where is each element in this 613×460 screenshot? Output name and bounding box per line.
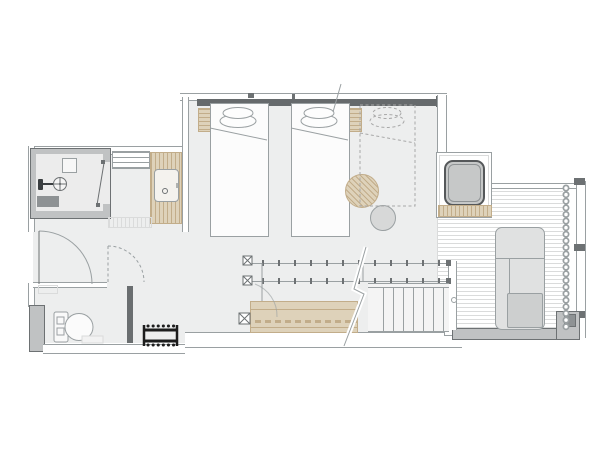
bedroom-right-wall	[437, 95, 447, 153]
floor-threshold	[108, 217, 152, 228]
main-bottom-wall	[185, 332, 462, 348]
window-mullion-mid	[574, 244, 585, 251]
twin-bed-1	[210, 103, 269, 237]
entry-threshold	[38, 285, 58, 294]
bathtub-inner-line	[448, 164, 481, 202]
twin-bed-2	[291, 103, 350, 237]
left-bottom-wall	[43, 344, 185, 354]
stair-right-wall	[448, 261, 457, 330]
round-table-gray	[370, 205, 396, 231]
shower-door-gap	[100, 162, 110, 204]
floor-plan	[0, 0, 613, 460]
chaise-lounge	[495, 227, 545, 330]
hanging-rail-upper	[248, 260, 449, 266]
round-stool-wood	[345, 174, 379, 208]
counter-bottom-line	[251, 327, 357, 328]
top-wall-tick	[292, 94, 295, 99]
annotation-mark	[248, 93, 254, 98]
sink	[154, 169, 179, 202]
chaise-cushion	[507, 293, 543, 328]
shower-mat	[37, 196, 59, 207]
stair-treads	[374, 288, 449, 331]
bathtub	[444, 160, 485, 206]
toilet-dark-wall	[127, 286, 133, 343]
bath-step-wood	[438, 205, 492, 217]
bedroom-left-wall	[182, 97, 189, 147]
work-counter	[250, 301, 358, 333]
door-track-box	[564, 314, 576, 327]
towel-shelf	[112, 151, 150, 169]
nightstand-right	[348, 108, 362, 132]
window-mullion-top	[574, 178, 585, 185]
vanity-right-wall	[182, 146, 189, 232]
staircase	[368, 283, 449, 332]
rail-end-post-upper	[446, 260, 451, 266]
counter-edge-line	[251, 309, 357, 310]
shower-niche	[62, 158, 77, 173]
terrace-top-line	[487, 183, 584, 189]
counter-hatch-strip	[255, 320, 357, 323]
